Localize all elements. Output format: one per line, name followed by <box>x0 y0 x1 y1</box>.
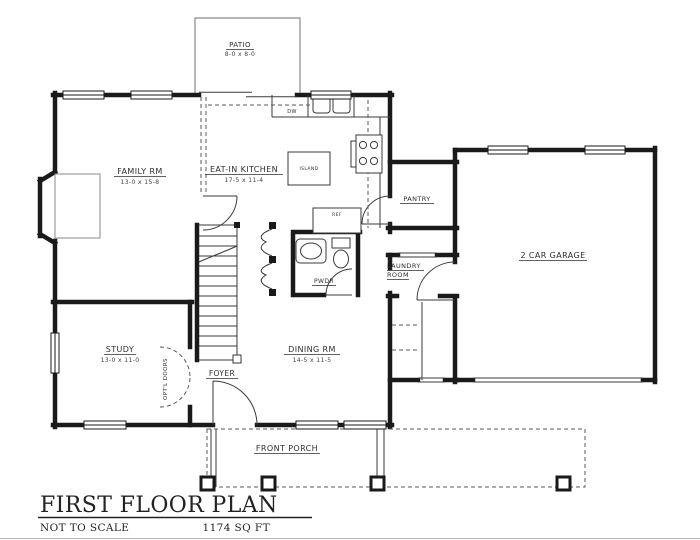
range-burner <box>370 157 377 164</box>
newel-post <box>233 355 241 363</box>
family-kitchen-ceiling-break <box>201 97 206 194</box>
floor-plan-sheet: PATIO 8-0 x 8-0 FAMILY RM 13-0 x 15-8 EA… <box>0 0 700 540</box>
kitchen-label: EAT-IN KITCHEN <box>210 165 278 174</box>
porch-column <box>201 477 214 490</box>
foyer-label: FOYER <box>209 369 235 378</box>
porch-columns <box>201 477 570 490</box>
range <box>356 135 382 173</box>
closet-shelves <box>392 325 420 350</box>
powder-sink <box>301 243 322 259</box>
accordion-door <box>261 229 272 256</box>
dining-room-dims: 14-5 x 11-5 <box>293 357 332 364</box>
porch-column <box>262 477 275 490</box>
dishwasher-label: DW <box>287 109 297 115</box>
sheet-title: FIRST FLOOR PLAN <box>40 493 278 518</box>
island-label: ISLAND <box>299 166 318 172</box>
front-porch-label: FRONT PORCH <box>256 444 318 453</box>
wall-caps <box>234 222 276 296</box>
patio-dims: 8-0 x 8-0 <box>225 51 256 58</box>
optional-doors-label: OPT'L DOORS <box>163 358 169 400</box>
front-door-arc <box>213 381 257 425</box>
refrigerator-label: REF <box>332 212 342 218</box>
range-burner <box>359 157 366 164</box>
title-block: FIRST FLOOR PLAN NOT TO SCALE 1174 SQ FT <box>38 493 312 534</box>
laundry-label-line2: ROOM <box>387 271 409 279</box>
powder-room-label: PWDR <box>314 278 334 285</box>
range-burner <box>359 141 366 148</box>
scale-note: NOT TO SCALE <box>40 522 129 534</box>
stairs-outline <box>199 225 237 360</box>
range-burner <box>370 141 377 148</box>
stair-treads <box>199 236 237 346</box>
floor-plan-drawing: PATIO 8-0 x 8-0 FAMILY RM 13-0 x 15-8 EA… <box>0 0 700 540</box>
toilet-bowl <box>334 250 349 268</box>
study-dims: 13-0 x 11-0 <box>101 357 140 364</box>
accordion-door <box>261 263 272 289</box>
laundry-bifold-door <box>398 253 437 257</box>
toilet-tank <box>332 238 350 248</box>
dining-room-label: DINING RM <box>288 345 336 354</box>
porch-column <box>371 477 384 490</box>
kitchen-dims: 17-5 x 11-4 <box>225 177 264 184</box>
area-note: 1174 SQ FT <box>203 522 271 534</box>
garage-door <box>473 378 643 382</box>
porch-column <box>557 477 570 490</box>
study-label: STUDY <box>106 345 134 354</box>
patio-label: PATIO <box>229 41 251 49</box>
laundry-label-line1: LAUNDRY <box>387 262 421 270</box>
family-room-dims: 13-0 x 15-8 <box>121 179 160 186</box>
garage-label: 2 CAR GARAGE <box>520 251 585 260</box>
bay-window-walls <box>40 172 55 243</box>
sliding-door <box>199 92 297 97</box>
stair-break-line <box>199 246 237 262</box>
fireplace-niche <box>55 174 100 238</box>
family-room-label: FAMILY RM <box>117 167 163 176</box>
range-handle <box>351 141 356 167</box>
pantry-door-arc <box>362 196 390 224</box>
refrigerator <box>313 208 361 233</box>
pantry-label: PANTRY <box>403 195 430 203</box>
